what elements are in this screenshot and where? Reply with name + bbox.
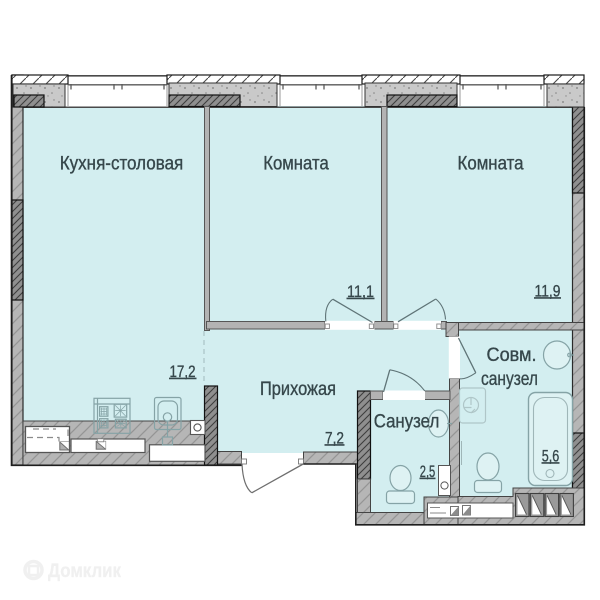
svg-text:Прихожая: Прихожая	[260, 379, 336, 400]
svg-text:Комната: Комната	[263, 154, 329, 175]
svg-text:Совм.: Совм.	[487, 345, 537, 366]
svg-text:Домклик: Домклик	[48, 561, 121, 582]
svg-text:Кухня-столовая: Кухня-столовая	[60, 154, 184, 175]
svg-text:санузел: санузел	[481, 369, 538, 390]
svg-text:Комната: Комната	[458, 154, 524, 175]
svg-text:Санузел: Санузел	[374, 412, 440, 433]
